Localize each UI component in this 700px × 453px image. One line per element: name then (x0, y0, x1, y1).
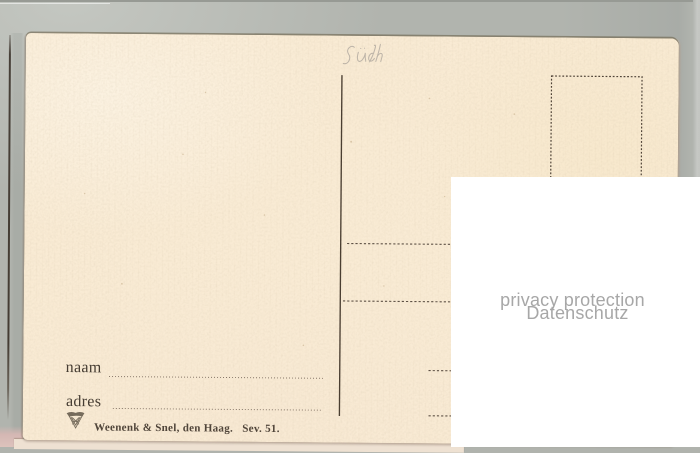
svg-text:Weenenk & Snel, den Haag. Se: Weenenk & Snel, den Haag. Sev. 51. (94, 421, 280, 435)
svg-text:naam: naam (66, 359, 102, 376)
svg-text:adres: adres (66, 393, 101, 410)
